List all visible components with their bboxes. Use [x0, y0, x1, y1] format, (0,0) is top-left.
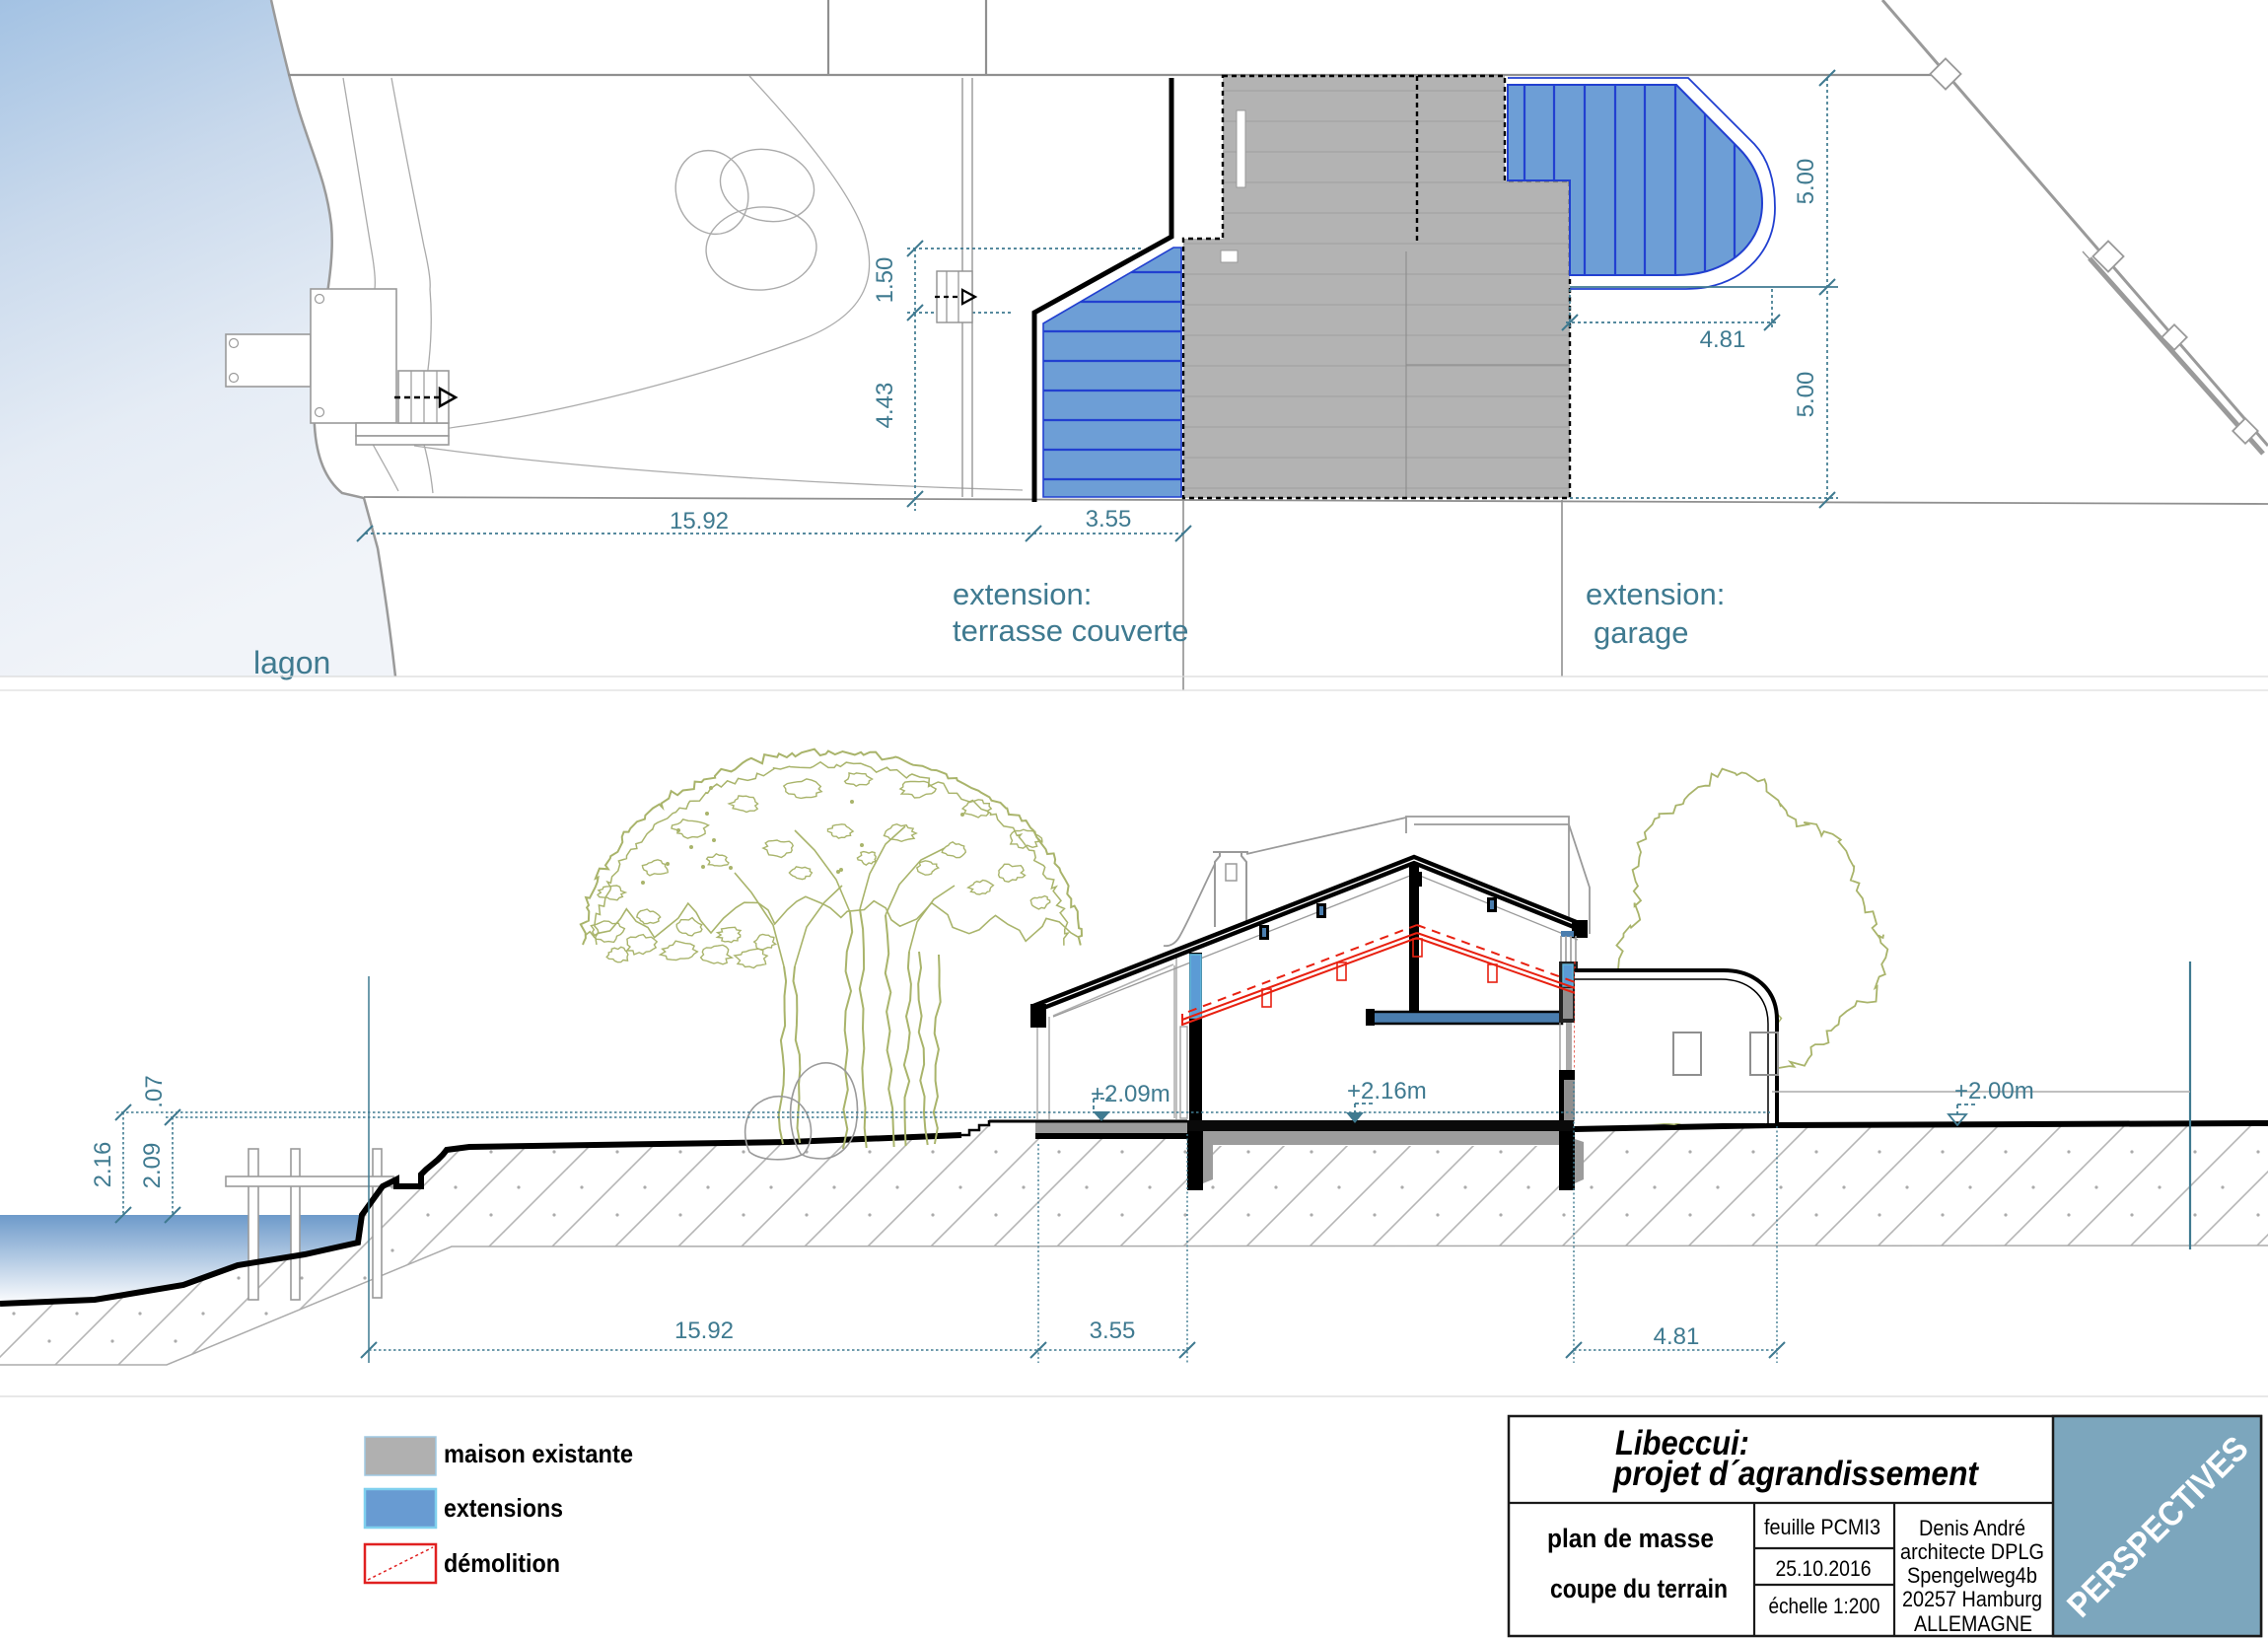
- svg-text:extension:: extension:: [1586, 577, 1725, 611]
- svg-text:maison existante: maison existante: [444, 1439, 633, 1468]
- svg-text:projet d´agrandissement: projet d´agrandissement: [1612, 1455, 1979, 1493]
- svg-text:+2.00m: +2.00m: [1954, 1078, 2034, 1104]
- svg-text:garage: garage: [1594, 615, 1689, 650]
- svg-text:coupe du terrain: coupe du terrain: [1550, 1574, 1728, 1603]
- svg-text:4.43: 4.43: [872, 383, 898, 429]
- svg-text:ALLEMAGNE: ALLEMAGNE: [1914, 1611, 2032, 1636]
- svg-text:terrasse couverte: terrasse couverte: [953, 613, 1189, 648]
- svg-text:3.55: 3.55: [1086, 506, 1132, 533]
- svg-text:+2.09m: +2.09m: [1091, 1081, 1170, 1107]
- svg-text:2.09: 2.09: [139, 1143, 166, 1189]
- svg-text:Denis André: Denis André: [1919, 1516, 2025, 1540]
- svg-text:2.16: 2.16: [90, 1142, 116, 1188]
- svg-text:plan de masse: plan de masse: [1547, 1524, 1714, 1553]
- svg-text:lagon: lagon: [253, 645, 330, 680]
- svg-text:15.92: 15.92: [674, 1318, 734, 1344]
- svg-text:4.81: 4.81: [1654, 1323, 1700, 1350]
- svg-text:+2.16m: +2.16m: [1347, 1078, 1427, 1104]
- svg-text:25.10.2016: 25.10.2016: [1776, 1556, 1872, 1581]
- svg-text:15.92: 15.92: [670, 508, 729, 534]
- svg-text:3.55: 3.55: [1090, 1318, 1136, 1344]
- svg-text:.07: .07: [141, 1075, 168, 1107]
- svg-text:démolition: démolition: [444, 1548, 560, 1578]
- svg-text:Spengelweg4b: Spengelweg4b: [1907, 1563, 2037, 1588]
- svg-text:feuille PCMI3: feuille PCMI3: [1764, 1515, 1880, 1539]
- svg-text:5.00: 5.00: [1793, 372, 1819, 418]
- svg-text:20257 Hamburg: 20257 Hamburg: [1902, 1587, 2042, 1611]
- svg-text:échelle 1:200: échelle 1:200: [1769, 1594, 1880, 1618]
- svg-text:4.81: 4.81: [1700, 326, 1746, 353]
- svg-text:architecte DPLG: architecte DPLG: [1900, 1539, 2044, 1564]
- svg-text:extensions: extensions: [444, 1493, 563, 1523]
- svg-text:extension:: extension:: [953, 577, 1092, 611]
- svg-text:5.00: 5.00: [1793, 159, 1819, 205]
- svg-text:1.50: 1.50: [872, 257, 898, 304]
